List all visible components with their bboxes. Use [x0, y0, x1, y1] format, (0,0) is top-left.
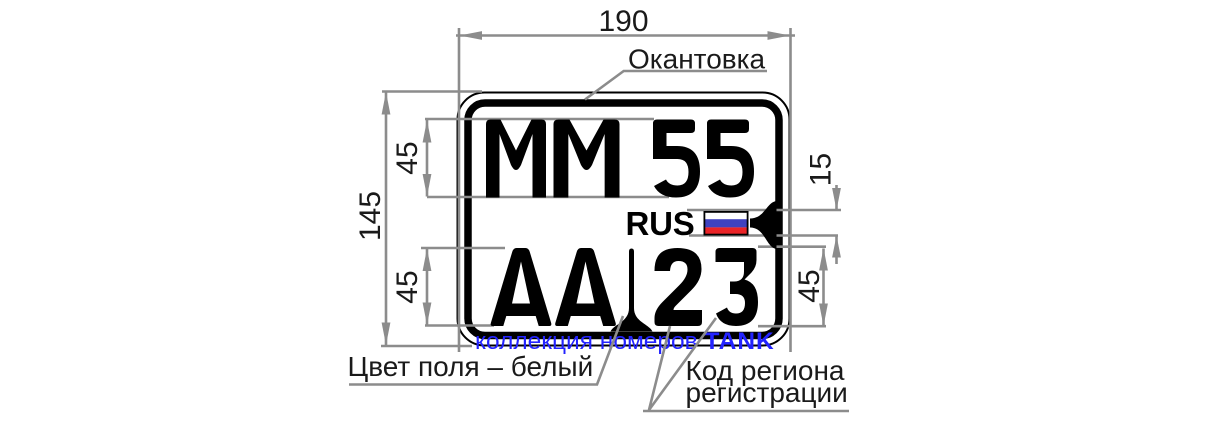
svg-text:15: 15 [805, 153, 838, 186]
svg-text:190: 190 [598, 5, 648, 38]
svg-text:45: 45 [391, 270, 424, 303]
svg-text:145: 145 [354, 191, 387, 241]
svg-text:Окантовка: Окантовка [628, 44, 766, 75]
svg-text:регистрации: регистрации [686, 377, 848, 408]
svg-text:45: 45 [391, 141, 424, 174]
svg-text:Цвет поля – белый: Цвет поля – белый [348, 351, 594, 382]
svg-text:RUS: RUS [626, 205, 695, 242]
svg-text:45: 45 [793, 269, 826, 302]
